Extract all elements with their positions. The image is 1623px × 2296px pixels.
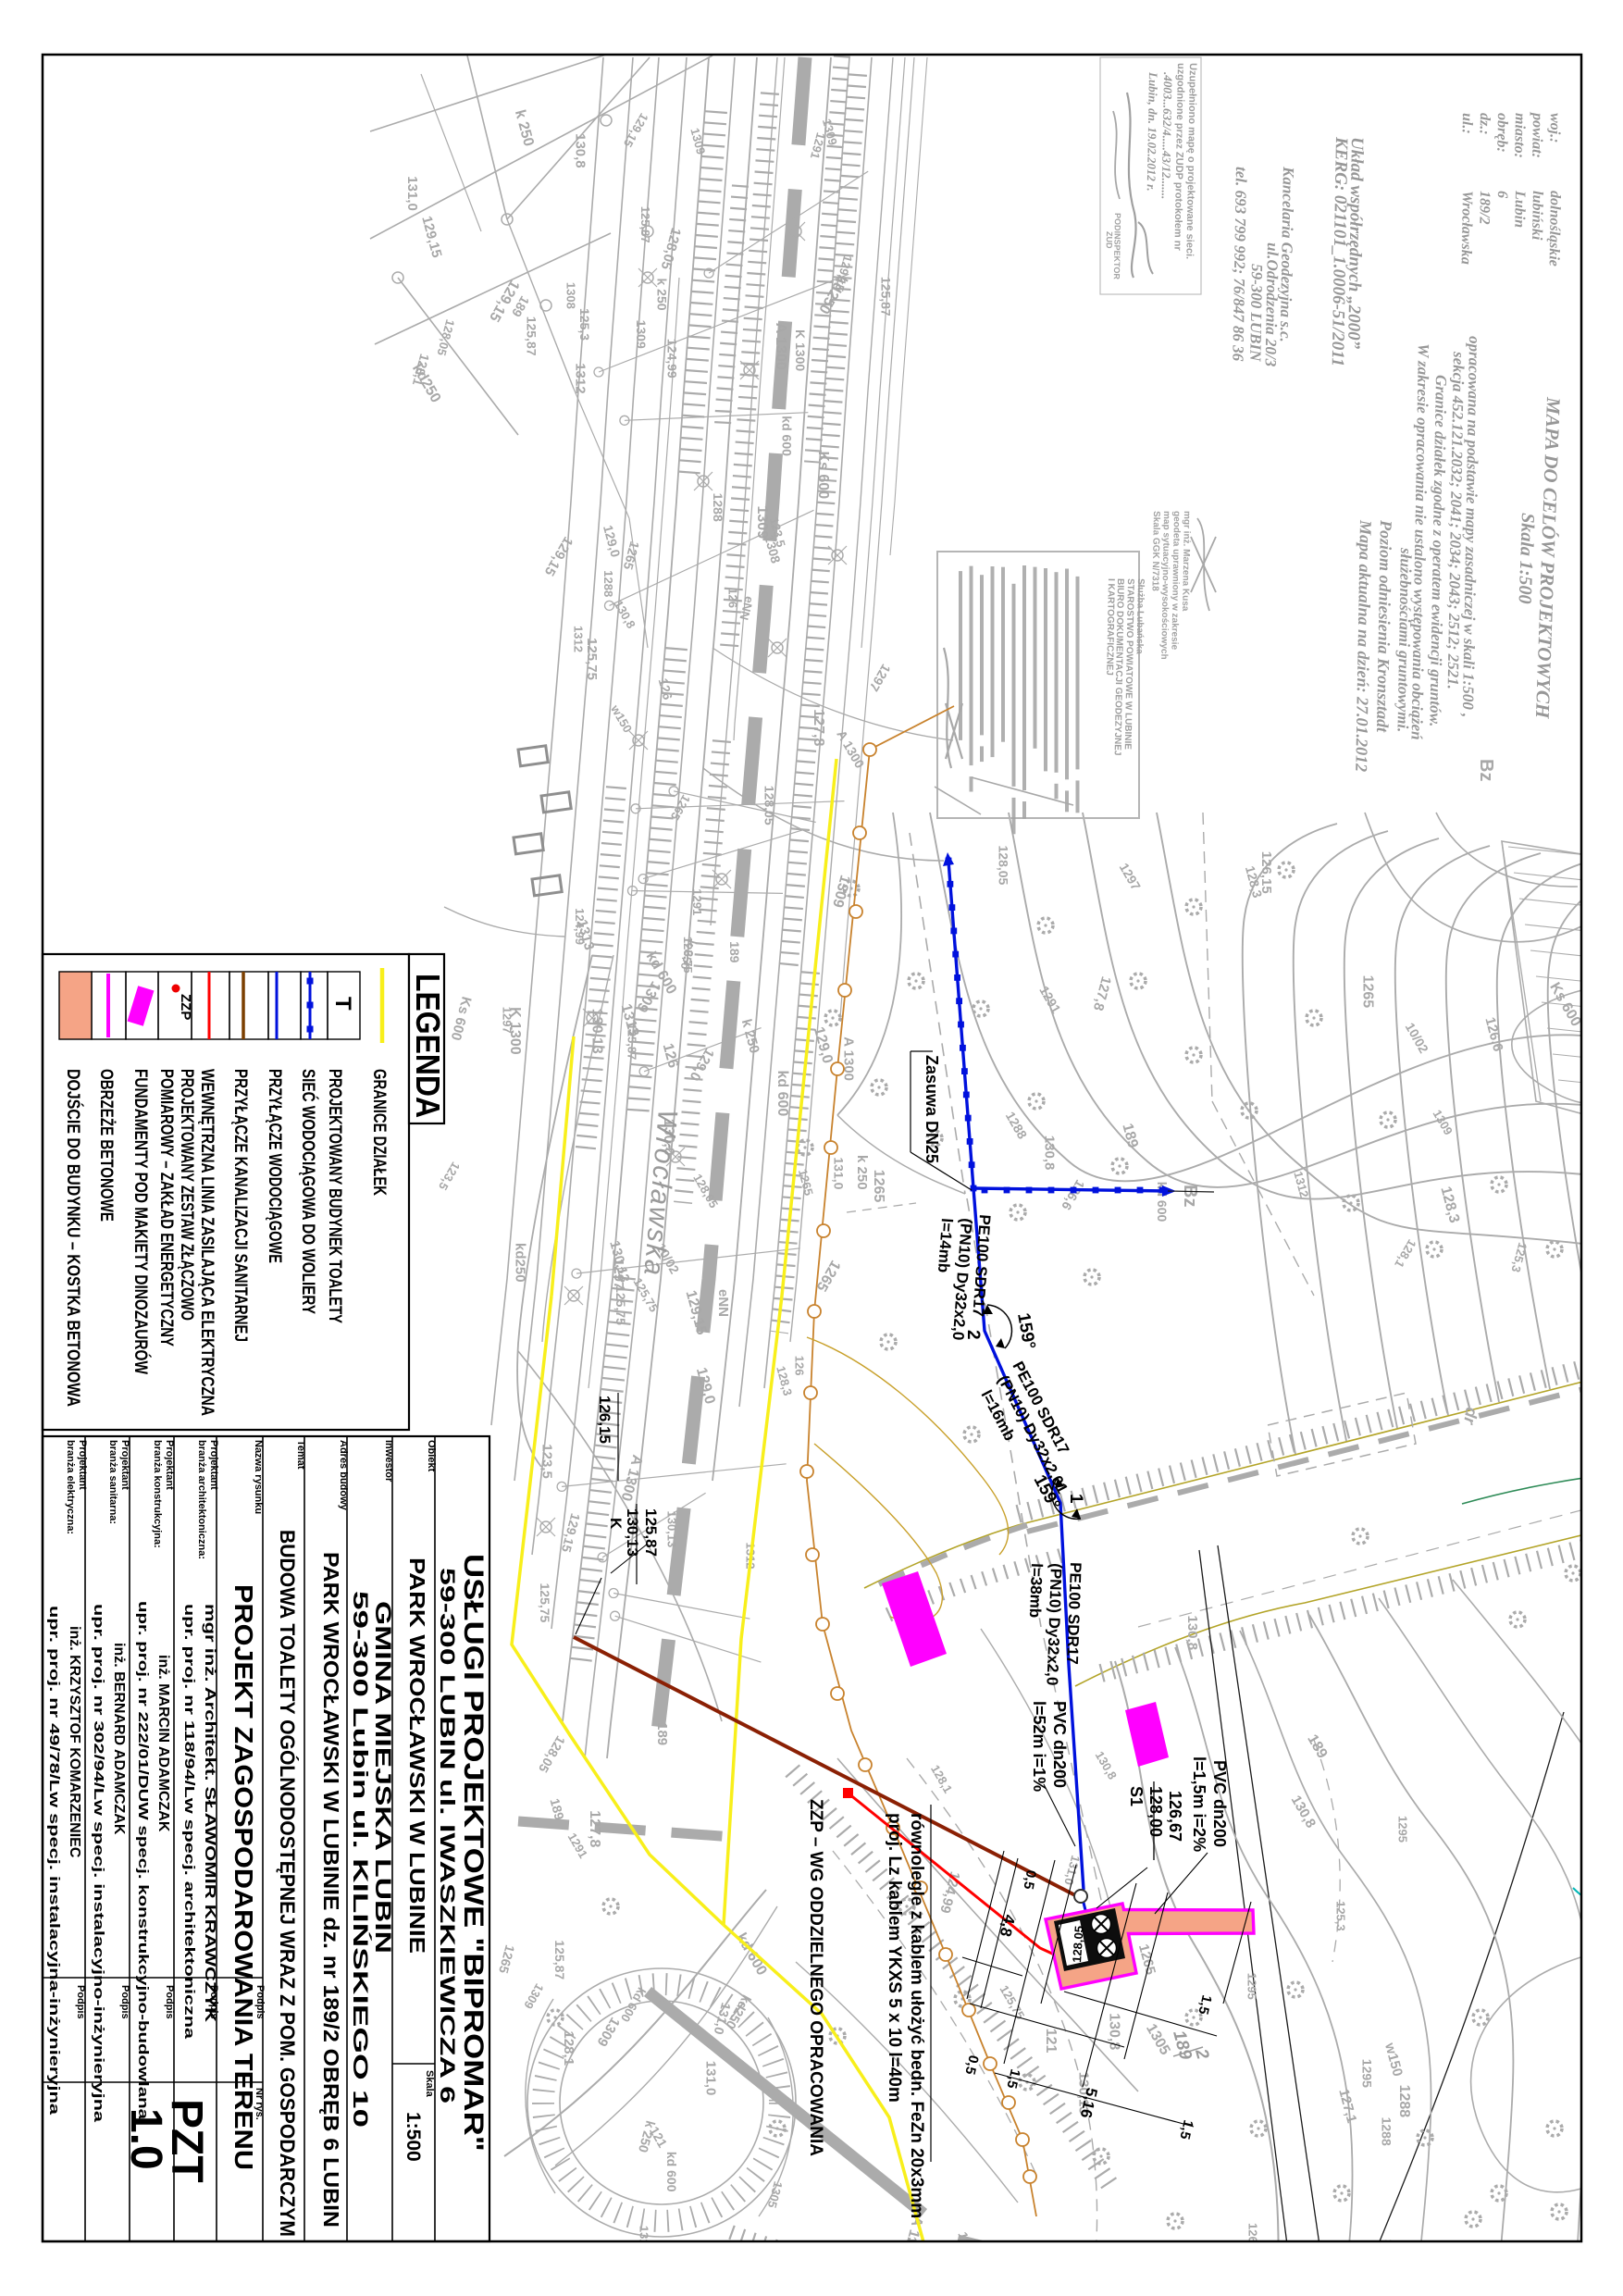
svg-text:mgr inż. Architekt. SŁAWOMIR K: mgr inż. Architekt. SŁAWOMIR KRAWCZYK bbox=[202, 1604, 217, 2023]
svg-text:równolegle z kablem ułożyć bed: równolegle z kablem ułożyć bedn. FeZn 20… bbox=[907, 1813, 926, 2218]
svg-text:ZZP – WG ODDZIELNEGO OPRACOW: ZZP – WG ODDZIELNEGO OPRACOWANIA bbox=[806, 1799, 825, 2156]
svg-text:Wrocławska: Wrocławska bbox=[1458, 191, 1475, 265]
svg-text:branża konstrukcyjna:: branża konstrukcyjna: bbox=[152, 1440, 163, 1548]
svg-text:Projektant: Projektant bbox=[164, 1440, 175, 1490]
svg-text:Projektant: Projektant bbox=[208, 1440, 219, 1490]
svg-text:125,87: 125,87 bbox=[879, 277, 894, 316]
svg-text:dolnośląskie: dolnośląskie bbox=[1546, 191, 1563, 267]
svg-text:l=1,5m i=2%: l=1,5m i=2% bbox=[1190, 1756, 1208, 1852]
svg-text:Podpis: Podpis bbox=[119, 1985, 130, 2019]
svg-text:K 1300: K 1300 bbox=[793, 329, 808, 371]
svg-text:1.0: 1.0 bbox=[121, 2108, 170, 2170]
svg-text:125,87: 125,87 bbox=[638, 206, 652, 243]
svg-text:Temat: Temat bbox=[295, 1440, 306, 1470]
svg-text:2: 2 bbox=[963, 1330, 983, 1340]
svg-text:l=38mb: l=38mb bbox=[1026, 1563, 1046, 1619]
svg-text:126,15: 126,15 bbox=[596, 1396, 613, 1444]
svg-text:1:500: 1:500 bbox=[403, 2112, 424, 2162]
svg-text:LEGENDA: LEGENDA bbox=[409, 974, 447, 1118]
svg-text:125,87: 125,87 bbox=[626, 1024, 639, 1061]
svg-text:kd250: kd250 bbox=[512, 1243, 527, 1283]
svg-text:kd 600: kd 600 bbox=[664, 2152, 679, 2192]
svg-text:125,87: 125,87 bbox=[524, 316, 539, 356]
svg-text:125,87: 125,87 bbox=[552, 1940, 567, 1980]
svg-text:Bz: Bz bbox=[1476, 759, 1496, 781]
svg-text:125,3: 125,3 bbox=[577, 308, 592, 341]
svg-text:128,05: 128,05 bbox=[762, 786, 777, 825]
svg-text:Adres budowy: Adres budowy bbox=[338, 1440, 349, 1511]
svg-text:1295: 1295 bbox=[1245, 1973, 1258, 2000]
svg-text:1295: 1295 bbox=[1395, 1816, 1409, 1843]
svg-text:6: 6 bbox=[1494, 191, 1510, 198]
svg-text:eNN: eNN bbox=[715, 1289, 731, 1317]
svg-text:upr. proj. nr 302/94/Lw specj.: upr. proj. nr 302/94/Lw specj. instalacy… bbox=[91, 1604, 106, 2123]
svg-text:T: T bbox=[330, 997, 355, 1011]
svg-text:128,00: 128,00 bbox=[1146, 1786, 1165, 1837]
svg-text:Skala: Skala bbox=[424, 2070, 435, 2098]
svg-text:Projektant: Projektant bbox=[77, 1440, 88, 1490]
svg-text:lubiński: lubiński bbox=[1529, 191, 1545, 241]
svg-text:k 250: k 250 bbox=[654, 279, 669, 311]
svg-text:Poziom odniesienia Kronsztadt: Poziom odniesienia Kronsztadt bbox=[1373, 519, 1395, 733]
svg-text:branża sanitarna:: branża sanitarna: bbox=[107, 1440, 118, 1524]
svg-text:BUDOWA TOALETY OGÓLNODOSTĘPNEJ: BUDOWA TOALETY OGÓLNODOSTĘPNEJ WRAZ Z PO… bbox=[276, 1530, 299, 2237]
svg-text:1: 1 bbox=[1066, 1494, 1085, 1504]
svg-text:130,8: 130,8 bbox=[1042, 1136, 1058, 1171]
svg-text:obręb:: obręb: bbox=[1493, 113, 1510, 153]
svg-text:189: 189 bbox=[654, 1722, 670, 1745]
svg-text:1265: 1265 bbox=[1360, 975, 1376, 1009]
svg-text:Ks 600: Ks 600 bbox=[815, 452, 831, 500]
svg-text:189: 189 bbox=[727, 941, 742, 963]
svg-text:Inwestor: Inwestor bbox=[383, 1440, 394, 1483]
svg-text:miasto:: miasto: bbox=[1511, 113, 1528, 158]
svg-text:130,13: 130,13 bbox=[624, 1508, 641, 1557]
svg-text:130,8: 130,8 bbox=[572, 133, 588, 168]
svg-text:126: 126 bbox=[726, 588, 740, 608]
svg-text:OBRZEŻE BETONOWE: OBRZEŻE BETONOWE bbox=[96, 1069, 116, 1222]
svg-text:.4003...632/4.....43/12.......: .4003...632/4.....43/12....... bbox=[1159, 72, 1175, 199]
svg-text:127,8: 127,8 bbox=[587, 1810, 602, 1847]
svg-text:branża architektoniczna:: branża architektoniczna: bbox=[196, 1440, 207, 1559]
svg-text:tel. 693 799 992; 76/847 86: tel. 693 799 992; 76/847 86 36 bbox=[1229, 167, 1250, 362]
svg-text:126: 126 bbox=[792, 1356, 806, 1376]
svg-text:Lubin: Lubin bbox=[1511, 190, 1528, 228]
svg-text:S1: S1 bbox=[1127, 1786, 1146, 1806]
svg-text:1297: 1297 bbox=[611, 1259, 626, 1289]
svg-text:woj.:: woj.: bbox=[1546, 113, 1563, 143]
svg-text:125,87: 125,87 bbox=[642, 1508, 660, 1557]
svg-text:Lubin, dn. 19.02.2012 r.: Lubin, dn. 19.02.2012 r. bbox=[1145, 71, 1160, 192]
svg-text:KERG: 021101_1.0006-51/2011: KERG: 021101_1.0006-51/2011 bbox=[1328, 136, 1351, 366]
svg-text:k 250: k 250 bbox=[854, 1155, 870, 1190]
svg-text:inż. MARCIN ADAMCZAK: inż. MARCIN ADAMCZAK bbox=[155, 1655, 171, 1832]
svg-text:131,0: 131,0 bbox=[831, 1157, 846, 1189]
svg-text:WEWNĘTRZNA LINIA ZASILAJĄCA EL: WEWNĘTRZNA LINIA ZASILAJĄCA ELEKTRYCZNA bbox=[197, 1069, 217, 1416]
svg-text:Obiekt: Obiekt bbox=[426, 1440, 437, 1472]
svg-text:Podpis: Podpis bbox=[75, 1985, 86, 2019]
svg-text:59-300 LUBIN: 59-300 LUBIN bbox=[1246, 264, 1266, 362]
svg-text:PE100 SDR17: PE100 SDR17 bbox=[1063, 1562, 1084, 1665]
svg-text:125,75: 125,75 bbox=[538, 1583, 552, 1623]
svg-text:GRANICE DZIAŁEK: GRANICE DZIAŁEK bbox=[369, 1069, 389, 1196]
svg-text:124,99: 124,99 bbox=[665, 339, 680, 379]
svg-text:ZUD: ZUD bbox=[1105, 231, 1114, 249]
svg-text:1288: 1288 bbox=[1379, 2117, 1394, 2146]
svg-text:1295: 1295 bbox=[1360, 2059, 1375, 2088]
svg-text:inż. KRZYSZTOF KOMARZENIEC: inż. KRZYSZTOF KOMARZENIEC bbox=[67, 1626, 82, 1858]
svg-text:ZZP: ZZP bbox=[178, 994, 193, 1020]
svg-text:A 1300: A 1300 bbox=[840, 1036, 856, 1081]
svg-text:1288: 1288 bbox=[711, 493, 725, 522]
svg-text:126,67: 126,67 bbox=[1166, 1791, 1184, 1842]
svg-text:1312: 1312 bbox=[572, 363, 588, 393]
svg-text:130,13: 130,13 bbox=[665, 1511, 679, 1548]
svg-text:FUNDAMENTY POD MAKIETY DINOZAU: FUNDAMENTY POD MAKIETY DINOZAURÓW bbox=[130, 1069, 151, 1374]
svg-text:1265: 1265 bbox=[871, 1170, 886, 1203]
svg-text:128,05: 128,05 bbox=[1070, 1925, 1086, 1963]
svg-text:POMIAROWY – ZAKŁAD ENERGETYCZN: POMIAROWY – ZAKŁAD ENERGETYCZNY bbox=[156, 1069, 176, 1347]
svg-text:inż. BERNARD ADAMCZAK: inż. BERNARD ADAMCZAK bbox=[111, 1643, 127, 1835]
svg-text:USŁUGI PROJEKTOWE "BIPROMAR": USŁUGI PROJEKTOWE "BIPROMAR" bbox=[458, 1554, 489, 2152]
svg-text:1308: 1308 bbox=[564, 282, 578, 309]
svg-text:upr. proj. nr 118/94/Lw specj.: upr. proj. nr 118/94/Lw specj. architekt… bbox=[181, 1604, 197, 2040]
svg-text:125,3: 125,3 bbox=[1333, 1901, 1347, 1931]
svg-text:1291: 1291 bbox=[690, 888, 704, 915]
svg-text:Skala GGK N/7318: Skala GGK N/7318 bbox=[1149, 511, 1161, 591]
svg-text:Nazwa rysunku: Nazwa rysunku bbox=[253, 1440, 264, 1514]
svg-text:kd 600: kd 600 bbox=[774, 1071, 790, 1117]
svg-text:128,1: 128,1 bbox=[561, 2031, 576, 2066]
svg-text:127,8: 127,8 bbox=[811, 709, 826, 746]
svg-text:125,75: 125,75 bbox=[613, 1285, 628, 1325]
svg-text:Skala 1:500: Skala 1:500 bbox=[1515, 513, 1538, 604]
svg-text:K: K bbox=[607, 1518, 625, 1530]
svg-text:PROJEKTOWANY BUDYNEK TOALETY: PROJEKTOWANY BUDYNEK TOALETY bbox=[325, 1069, 344, 1323]
svg-text:PRZYŁĄCZE KANALIZACJI SANITARN: PRZYŁĄCZE KANALIZACJI SANITARNEJ bbox=[230, 1069, 250, 1342]
svg-text:ul.:: ul.: bbox=[1459, 113, 1475, 134]
svg-text:1312: 1312 bbox=[572, 626, 586, 652]
svg-text:131,0: 131,0 bbox=[404, 176, 420, 211]
svg-text:I KARTOGRAFICZNEJ: I KARTOGRAFICZNEJ bbox=[1104, 578, 1116, 676]
svg-text:SIEĆ WODOCIĄGOWA DO WOLIERY: SIEĆ WODOCIĄGOWA DO WOLIERY bbox=[298, 1069, 318, 1314]
svg-text:PVC dn200: PVC dn200 bbox=[1210, 1760, 1229, 1847]
svg-text:służebnościami gruntowymi.: służebnościami gruntowymi. bbox=[1394, 547, 1415, 733]
svg-text:189/2: 189/2 bbox=[1476, 191, 1493, 225]
svg-text:powiat:: powiat: bbox=[1529, 111, 1545, 158]
svg-text:1288: 1288 bbox=[1396, 2085, 1412, 2118]
svg-text:PARK WROCŁAWSKI W LUBINIE dz.: PARK WROCŁAWSKI W LUBINIE dz. nr 189/2 O… bbox=[319, 1552, 343, 2228]
svg-text:upr. proj. nr 222/01/DUW specj: upr. proj. nr 222/01/DUW specj. konstruk… bbox=[135, 1601, 151, 2120]
svg-text:PARK WROCŁAWSKI W LUBINIE: PARK WROCŁAWSKI W LUBINIE bbox=[405, 1558, 429, 1954]
svg-text:Zasuwa DN25: Zasuwa DN25 bbox=[923, 1055, 941, 1163]
svg-text:PROJEKT ZAGOSPODAROWANIA TEREN: PROJEKT ZAGOSPODAROWANIA TERENU bbox=[229, 1584, 258, 2170]
svg-text:PROJEKTOWANY ZESTAW ZŁĄCZOWO: PROJEKTOWANY ZESTAW ZŁĄCZOWO bbox=[177, 1069, 196, 1321]
svg-text:proj. Lz kablem YKXS 5 x 10: proj. Lz kablem YKXS 5 x 10 l=40m bbox=[885, 1813, 904, 2103]
svg-text:130,8: 130,8 bbox=[1184, 1616, 1200, 1651]
svg-text:130,13: 130,13 bbox=[588, 1009, 604, 1054]
svg-text:kd 600: kd 600 bbox=[779, 416, 794, 456]
svg-text:l=52m i=1%: l=52m i=1% bbox=[1030, 1701, 1048, 1792]
svg-text:branża elektryczna:: branża elektryczna: bbox=[65, 1440, 76, 1534]
svg-text:1309: 1309 bbox=[754, 506, 770, 540]
svg-text:Podpis: Podpis bbox=[164, 1985, 175, 2019]
svg-text:GMINA MIEJSKA LUBIN: GMINA MIEJSKA LUBIN bbox=[370, 1601, 395, 1954]
svg-text:128,05: 128,05 bbox=[996, 846, 1010, 886]
svg-text:Bz: Bz bbox=[1180, 1185, 1200, 1207]
svg-text:125,75: 125,75 bbox=[681, 937, 695, 974]
svg-text:upr. proj. nr 49/78/Lw specj.: upr. proj. nr 49/78/Lw specj. instalacyj… bbox=[46, 1606, 62, 2116]
svg-text:1288: 1288 bbox=[601, 570, 615, 597]
svg-text:dz.:: dz.: bbox=[1477, 113, 1493, 135]
svg-text:59-300 LUBIN ul. IWASZKIEWICZA: 59-300 LUBIN ul. IWASZKIEWICZA 6 bbox=[436, 1568, 459, 2104]
svg-text:0,5: 0,5 bbox=[1020, 1868, 1038, 1890]
svg-text:59-300 Lubin ul. KILIŃSKIEGO 1: 59-300 Lubin ul. KILIŃSKIEGO 10 bbox=[349, 1591, 372, 2128]
svg-text:Projektant: Projektant bbox=[119, 1440, 130, 1490]
svg-text:121: 121 bbox=[1043, 2029, 1059, 2054]
svg-text:PVC dn200: PVC dn200 bbox=[1050, 1701, 1069, 1788]
svg-text:A 1300: A 1300 bbox=[773, 323, 788, 370]
svg-text:1309: 1309 bbox=[634, 320, 649, 349]
svg-text:K 1300: K 1300 bbox=[507, 1007, 523, 1055]
svg-text:123,5: 123,5 bbox=[539, 1444, 555, 1479]
svg-text:DOJŚCIE DO BUDYNKU – KOSTKA BE: DOJŚCIE DO BUDYNKU – KOSTKA BETONOWA bbox=[63, 1069, 83, 1407]
svg-text:131,0: 131,0 bbox=[702, 2061, 718, 2096]
svg-text:PRZYŁĄCZE WODOCIĄGOWE: PRZYŁĄCZE WODOCIĄGOWE bbox=[265, 1069, 284, 1263]
